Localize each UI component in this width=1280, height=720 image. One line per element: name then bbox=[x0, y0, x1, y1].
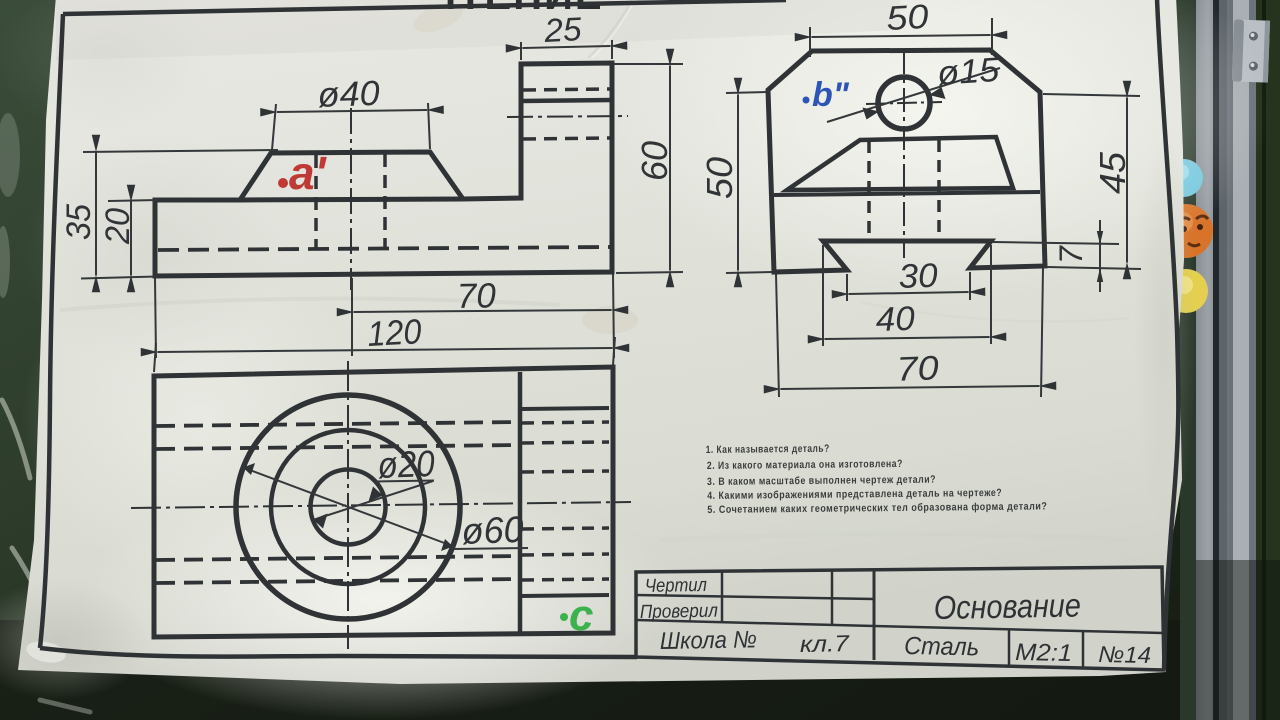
svg-text:№14: №14 bbox=[1098, 641, 1151, 668]
svg-text:Сталь: Сталь bbox=[904, 632, 979, 661]
svg-text:c: c bbox=[569, 591, 593, 640]
svg-text:ø20: ø20 bbox=[377, 443, 436, 486]
svg-text:ø60: ø60 bbox=[461, 509, 525, 552]
svg-text:2. Из какого материала она изг: 2. Из какого материала она изготовлена? bbox=[707, 458, 903, 472]
svg-text:Школа №: Школа № bbox=[660, 626, 757, 655]
svg-text:a': a' bbox=[289, 147, 328, 199]
svg-text:60: 60 bbox=[634, 141, 675, 181]
svg-text:50: 50 bbox=[699, 157, 740, 199]
svg-text:ø40: ø40 bbox=[317, 74, 381, 115]
svg-text:7: 7 bbox=[1053, 245, 1089, 264]
svg-text:М2:1: М2:1 bbox=[1015, 639, 1072, 667]
svg-text:70: 70 bbox=[896, 349, 939, 388]
svg-text:25: 25 bbox=[542, 10, 583, 49]
svg-text:3. В каком масштабе выполнен ч: 3. В каком масштабе выполнен чертеж дета… bbox=[707, 474, 936, 488]
svg-text:50: 50 bbox=[885, 0, 929, 38]
svg-text:40: 40 bbox=[875, 300, 915, 339]
svg-text:ø15: ø15 bbox=[936, 51, 1001, 93]
svg-text:30: 30 bbox=[898, 257, 938, 296]
svg-text:Основание: Основание bbox=[933, 586, 1081, 626]
svg-text:20: 20 bbox=[99, 208, 137, 245]
svg-text:b": b" bbox=[812, 76, 850, 114]
svg-text:кл.7: кл.7 bbox=[800, 630, 851, 657]
svg-text:35: 35 bbox=[60, 204, 98, 240]
svg-text:Проверил: Проверил bbox=[640, 601, 719, 623]
svg-text:1. Как называется деталь?: 1. Как называется деталь? bbox=[706, 443, 830, 456]
svg-text:Чертил: Чертил bbox=[645, 575, 708, 597]
svg-text:120: 120 bbox=[366, 312, 422, 354]
svg-text:45: 45 bbox=[1092, 151, 1133, 194]
svg-text:70: 70 bbox=[456, 276, 496, 316]
